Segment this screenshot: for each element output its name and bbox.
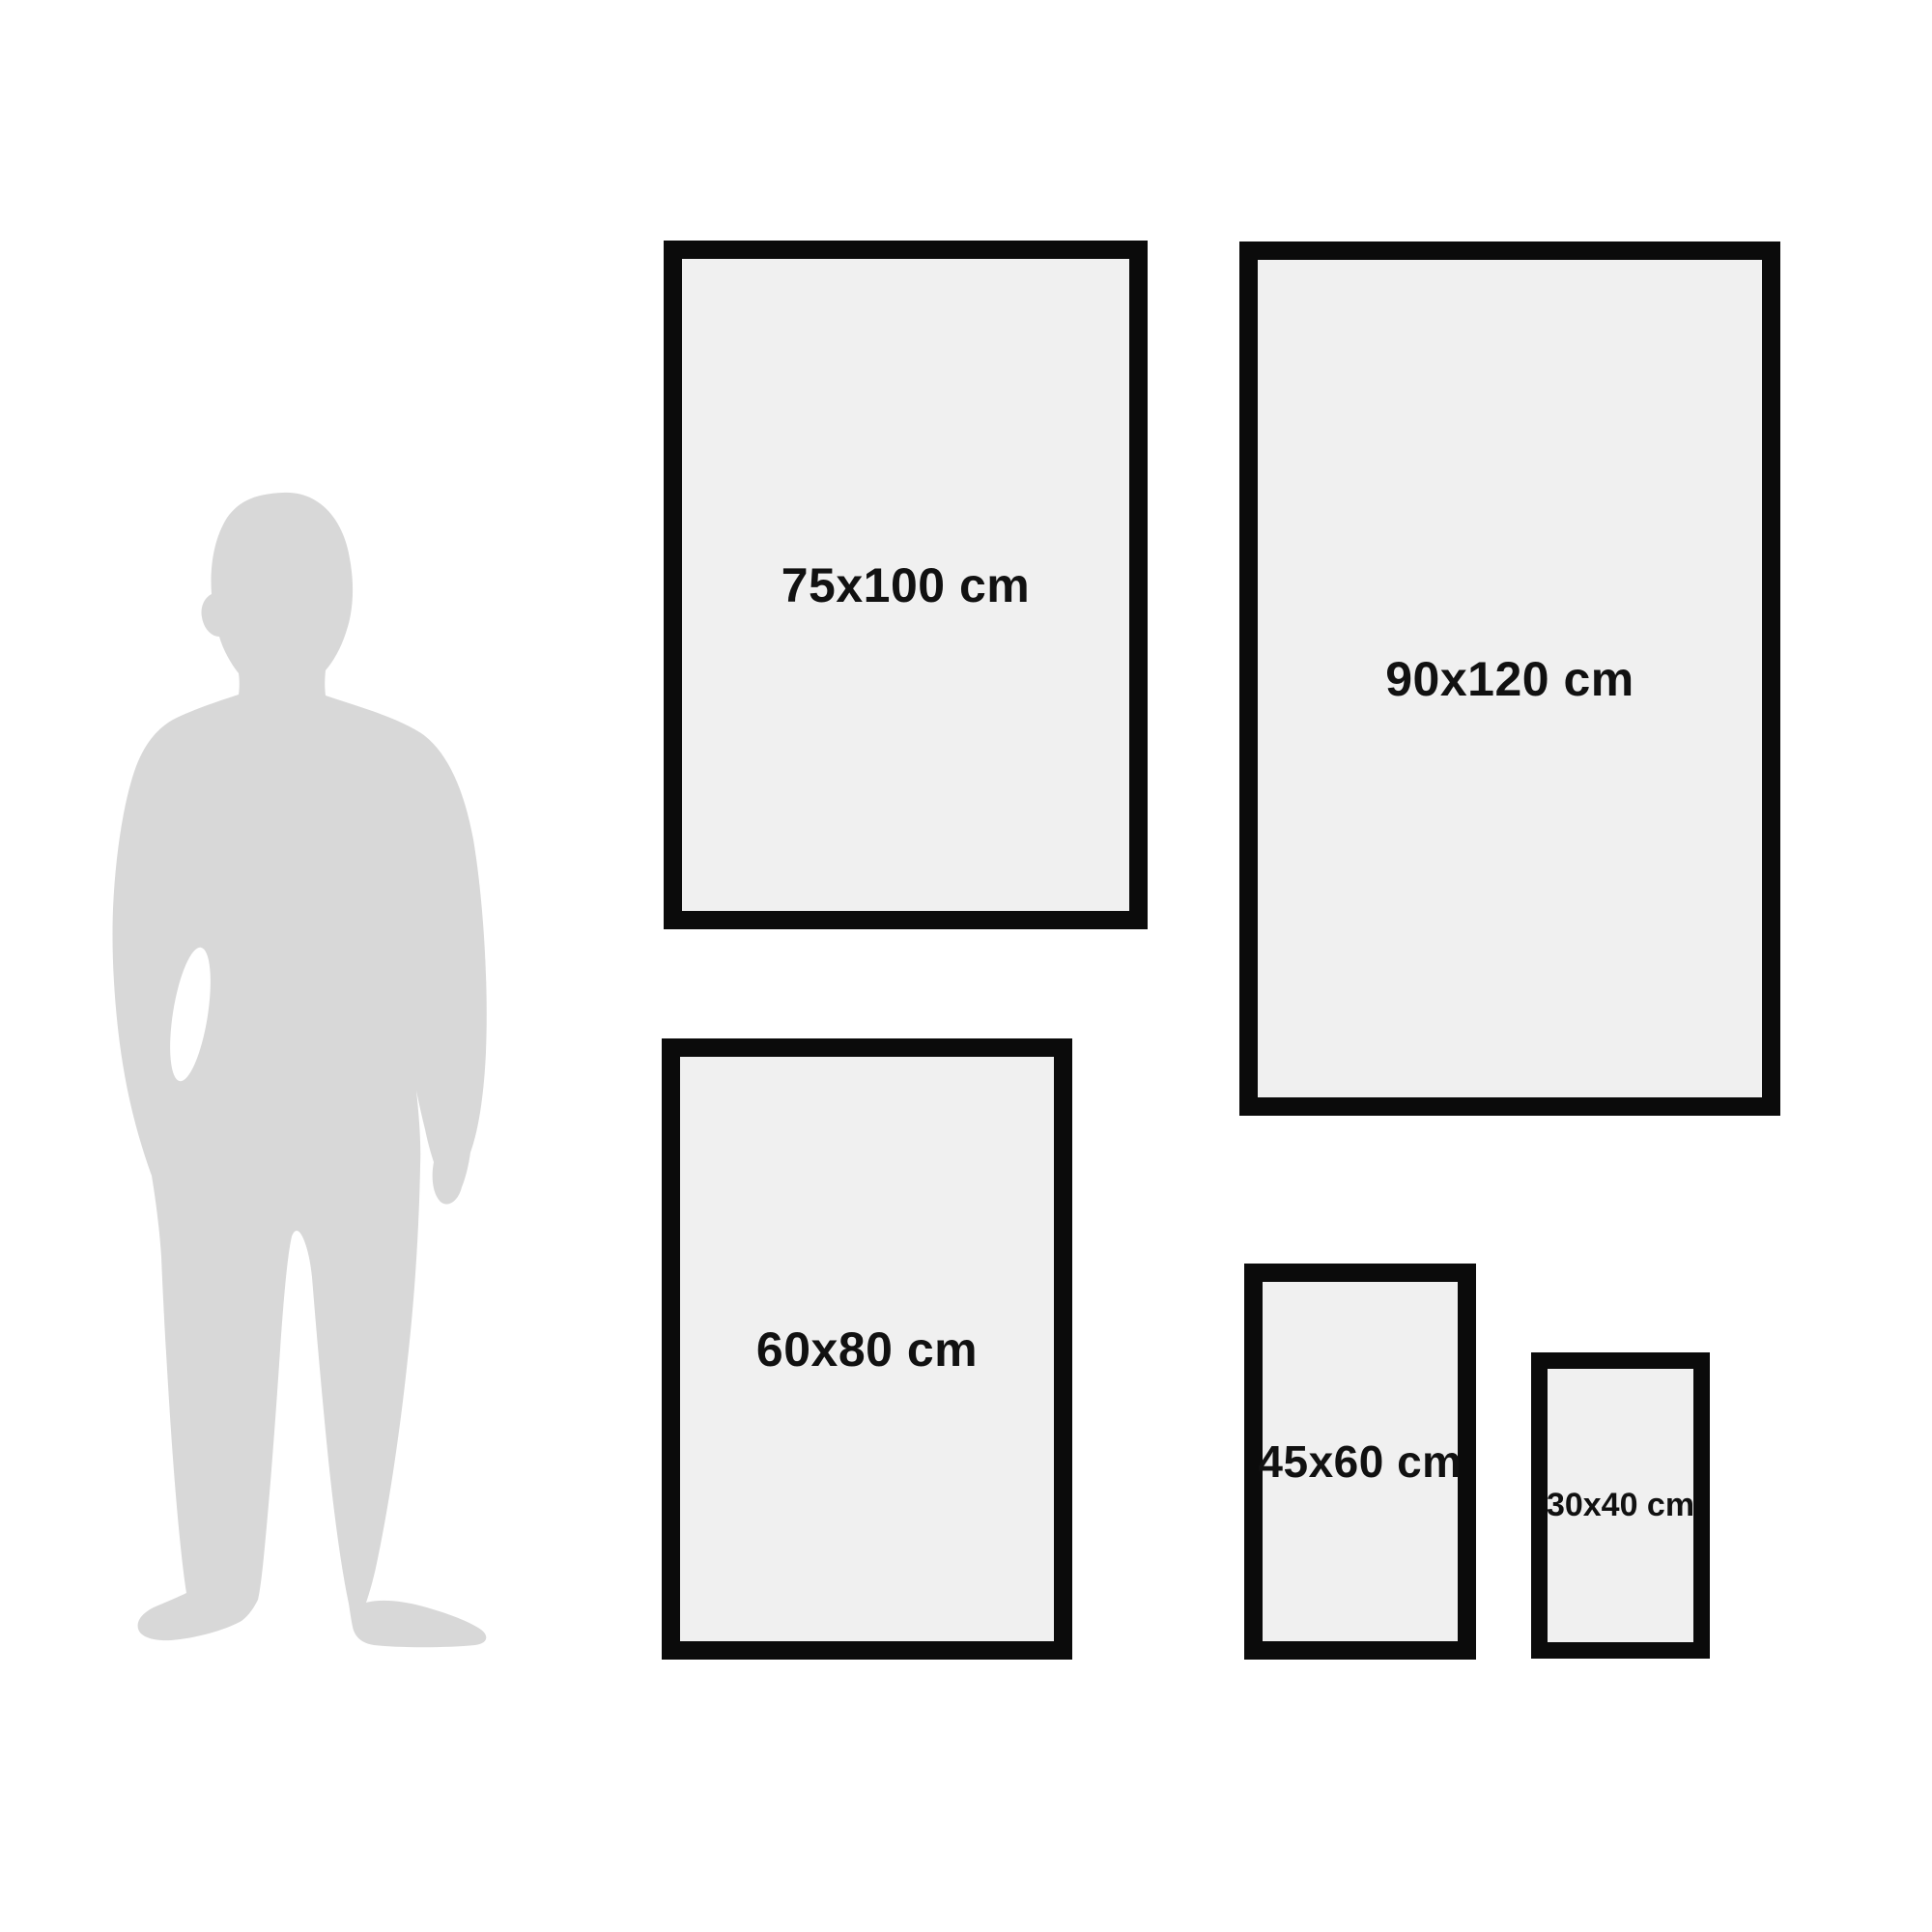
size-label-30x40: 30x40 cm: [1547, 1487, 1694, 1524]
poster-size-comparison-diagram: 75x100 cm 90x120 cm 60x80 cm 45x60 cm 30…: [0, 0, 1932, 1932]
size-label-75x100: 75x100 cm: [781, 557, 1031, 613]
size-label-90x120: 90x120 cm: [1385, 651, 1634, 707]
frame-75x100: 75x100 cm: [664, 241, 1148, 929]
frame-45x60: 45x60 cm: [1244, 1264, 1476, 1660]
frame-60x80: 60x80 cm: [662, 1038, 1072, 1660]
size-label-60x80: 60x80 cm: [756, 1321, 978, 1378]
size-label-45x60: 45x60 cm: [1258, 1435, 1462, 1488]
frame-30x40: 30x40 cm: [1531, 1352, 1710, 1659]
man-silhouette-icon: [82, 483, 497, 1652]
frame-90x120: 90x120 cm: [1239, 241, 1780, 1116]
